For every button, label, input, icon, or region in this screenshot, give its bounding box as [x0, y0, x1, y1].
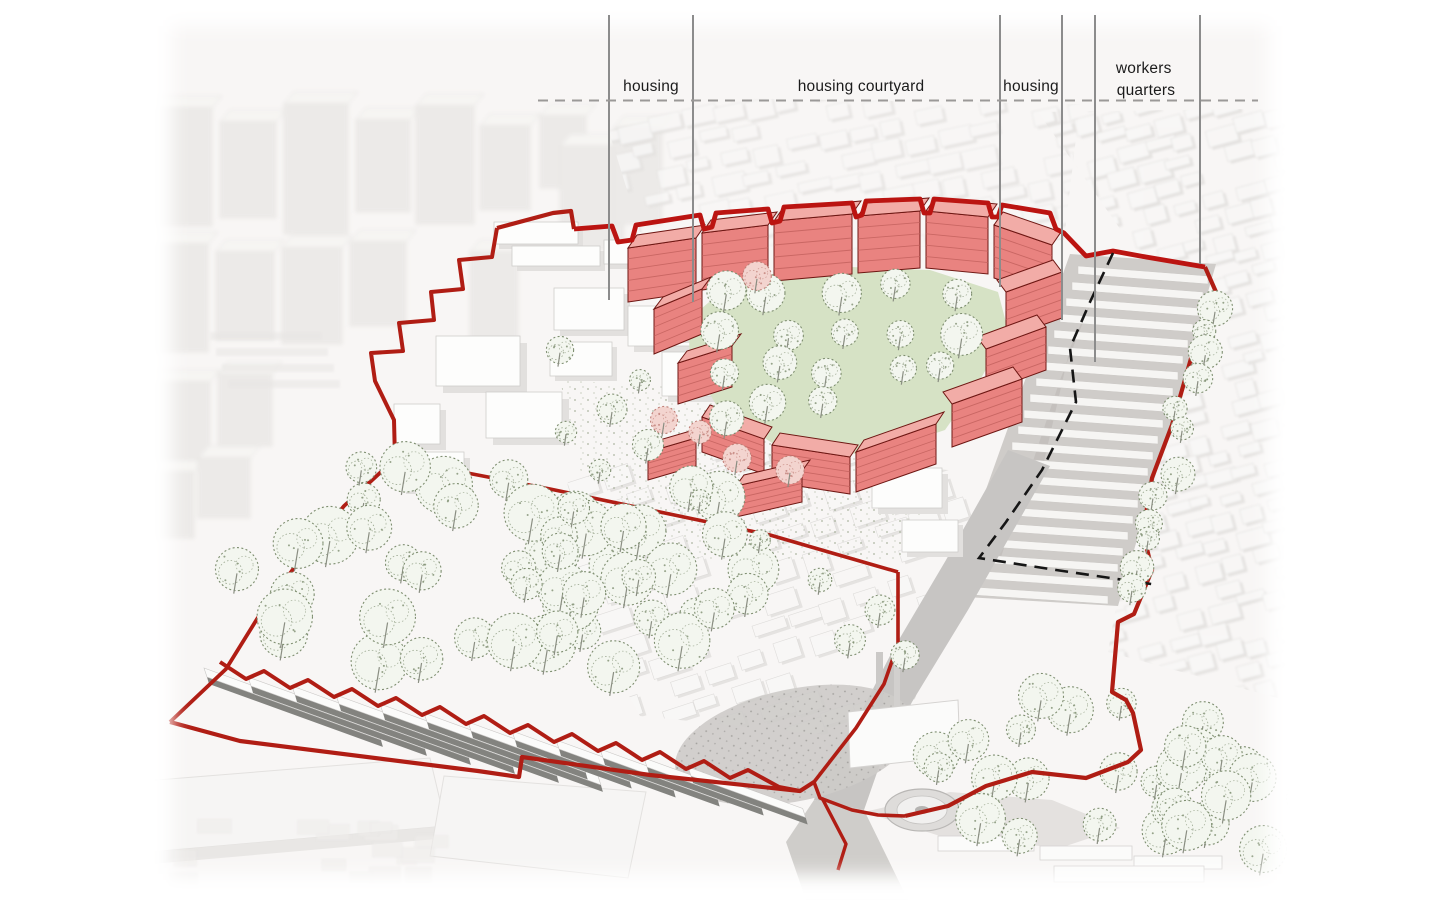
callout-label-housing-right: housing: [1003, 78, 1059, 95]
axonometric-scene: housing housing courtyard housing worker…: [0, 0, 1440, 900]
callout-label-housing-courtyard: housing courtyard: [798, 78, 925, 95]
callout-label-housing-left: housing: [623, 78, 679, 95]
site-plan-rendering: housing housing courtyard housing worker…: [0, 0, 1440, 900]
